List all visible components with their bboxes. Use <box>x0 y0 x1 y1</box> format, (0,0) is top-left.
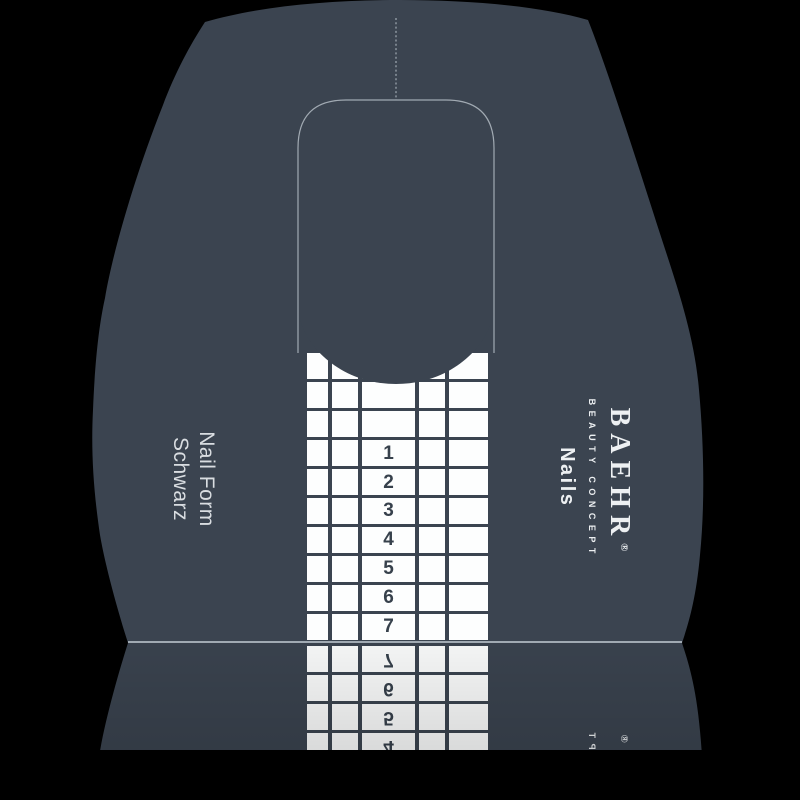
product-name-line1: Nail Form <box>193 431 219 527</box>
nail-bed-shape <box>298 100 494 384</box>
page-root: { "label": { "line1": "Nail Form", "line… <box>0 0 800 800</box>
brand-wordmark: BAEHR <box>604 408 635 543</box>
registered-trademark-symbol: ® <box>618 543 630 551</box>
reflection: 1234567 Nail Form Schwarz BAEHR® BEAUTY … <box>0 643 800 750</box>
brand-block: BAEHR® BEAUTY CONCEPT Nails <box>556 381 632 571</box>
product-name-line2: Schwarz <box>167 437 193 521</box>
product-photo: 1234567 Nail Form Schwarz BAEHR® BEAUTY … <box>0 0 800 800</box>
nail-cutout-layer <box>0 0 800 643</box>
reflection-fade <box>0 643 800 750</box>
brand-name: BAEHR® <box>600 401 633 552</box>
nail-form: 1234567 Nail Form Schwarz BAEHR® BEAUTY … <box>0 0 800 643</box>
brand-sub-label: Nails <box>555 445 578 508</box>
brand-tagline: BEAUTY CONCEPT <box>587 393 597 559</box>
product-name-label: Nail Form Schwarz <box>167 414 219 544</box>
